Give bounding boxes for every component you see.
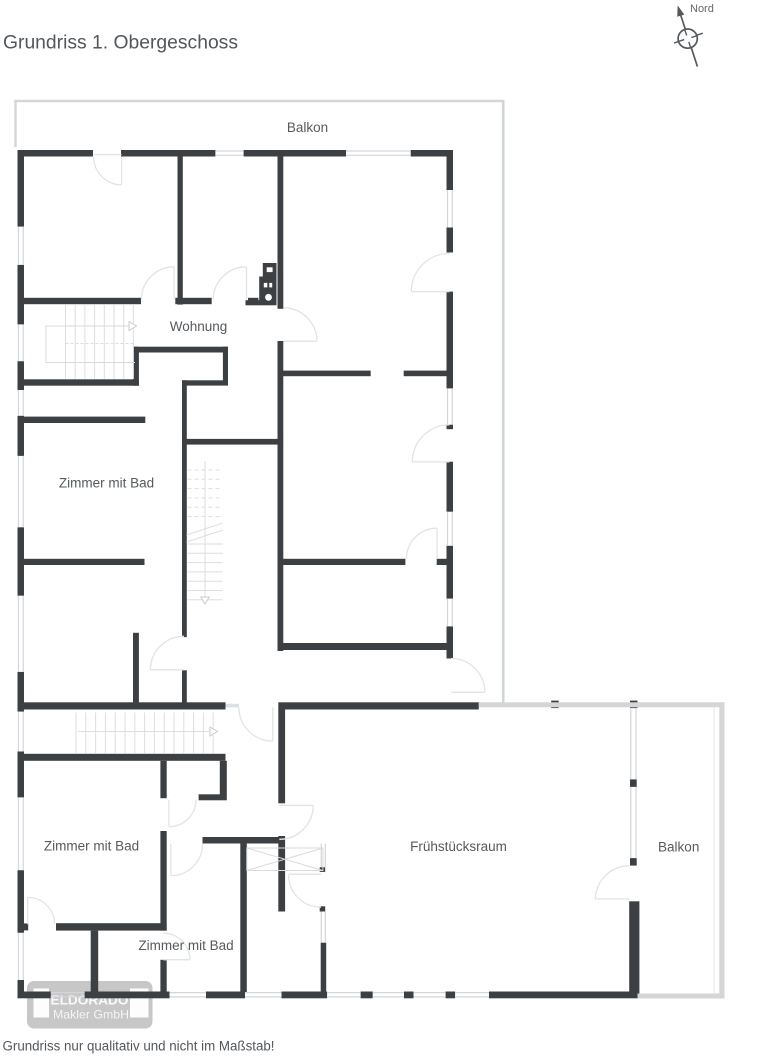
svg-text:Grundriss nur qualitativ und n: Grundriss nur qualitativ und nicht im Ma… bbox=[3, 1039, 275, 1054]
svg-text:Balkon: Balkon bbox=[287, 120, 328, 135]
svg-text:Grundriss 1. Obergeschoss: Grundriss 1. Obergeschoss bbox=[3, 32, 238, 54]
svg-text:Zimmer mit Bad: Zimmer mit Bad bbox=[59, 476, 154, 491]
svg-text:Zimmer mit Bad: Zimmer mit Bad bbox=[138, 938, 233, 953]
svg-text:Balkon: Balkon bbox=[658, 840, 699, 855]
svg-text:Zimmer mit Bad: Zimmer mit Bad bbox=[44, 839, 139, 854]
svg-text:Makler GmbH: Makler GmbH bbox=[53, 1008, 129, 1022]
svg-text:Nord: Nord bbox=[690, 3, 714, 15]
svg-text:Frühstücksraum: Frühstücksraum bbox=[410, 839, 507, 854]
svg-text:Wohnung: Wohnung bbox=[170, 319, 228, 334]
